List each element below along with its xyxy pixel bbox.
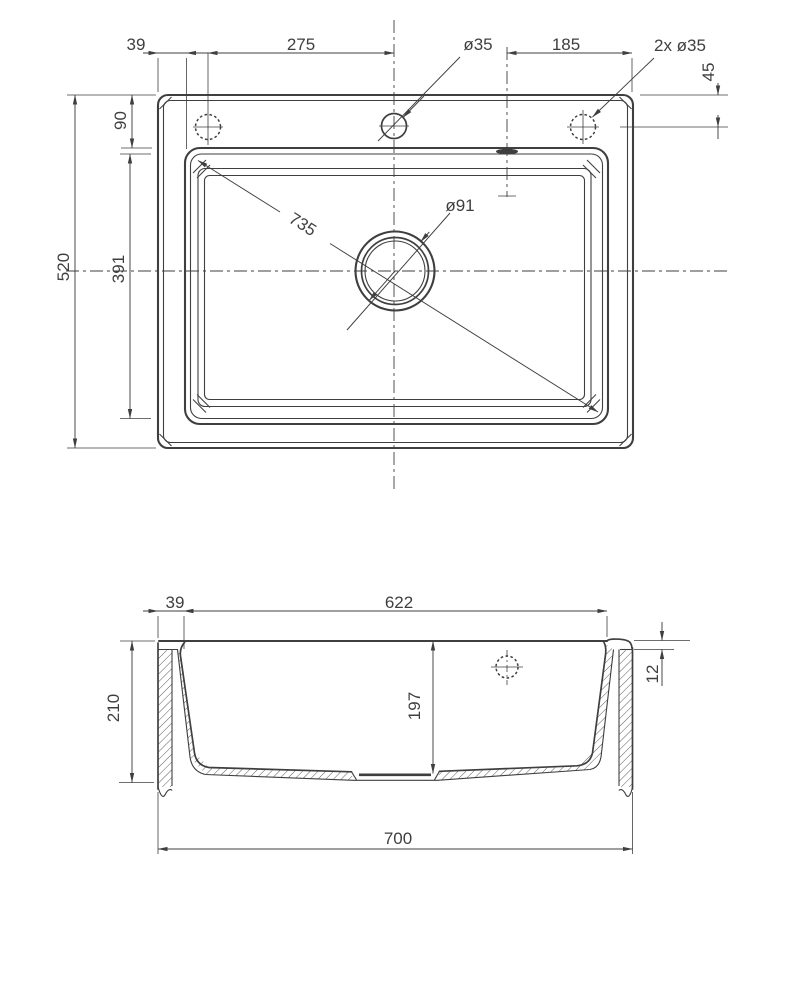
- centerlines: [66, 20, 731, 491]
- dim-45: 45: [620, 63, 728, 139]
- right-tap-hole-hidden: 2x ø35: [567, 36, 706, 144]
- top-view: 735 ø91 ø35: [54, 20, 731, 491]
- dim-bowl-diagonal: 735: [286, 209, 320, 240]
- hatch-right-skirt: [619, 650, 632, 787]
- bowl-top-edge: [185, 148, 608, 424]
- dim-overall-height: 210: [104, 694, 123, 722]
- dim-210: 210: [104, 641, 155, 783]
- drain: ø91: [347, 196, 475, 330]
- dim-top-chain: 39 275: [127, 35, 394, 149]
- sink-technical-drawing: 735 ø91 ø35: [0, 0, 794, 987]
- dim-overall-depth: 520: [54, 253, 73, 281]
- left-break-line: [158, 786, 172, 796]
- dim-bowl-width: 622: [385, 593, 413, 612]
- dim-overall-width: 700: [384, 829, 412, 848]
- dim-rim-height: 12: [643, 665, 662, 684]
- bowl-diagonal-dimension: 735: [198, 161, 598, 413]
- right-break-line: [619, 786, 633, 796]
- dim-bowl-depth: 391: [109, 255, 128, 283]
- dim-bowl-height: 197: [405, 692, 424, 720]
- dim-rim-offset-top: 39: [127, 35, 146, 54]
- bowl-outline: [185, 148, 608, 424]
- section-hatching: [158, 643, 632, 787]
- label-drain-diameter: ø91: [445, 196, 474, 215]
- dim-rim-offset-section: 39: [166, 593, 185, 612]
- bowl-outer-surface-left: [178, 650, 354, 781]
- dim-197: 197: [405, 641, 433, 774]
- bowl-rim-step: [191, 154, 603, 419]
- faucet-hole: ø35: [378, 35, 493, 141]
- dim-hole-spacing: 275: [287, 35, 315, 54]
- dim-overflow-to-edge: 185: [552, 35, 580, 54]
- dim-deck-depth: 90: [111, 111, 130, 130]
- hatch-right-wall-floor: [438, 643, 614, 780]
- section-view: 39 622 210 197 12 700: [104, 593, 690, 854]
- label-side-holes: 2x ø35: [654, 36, 706, 55]
- dim-391: 391: [109, 154, 151, 419]
- hatch-left-skirt: [158, 650, 171, 787]
- dim-12: 12: [634, 622, 690, 686]
- overflow-slot: [496, 149, 518, 155]
- bowl-floor-inner: [205, 176, 585, 400]
- drawing-sheet: 735 ø91 ø35: [0, 0, 794, 987]
- dim-700: 700: [158, 792, 633, 854]
- dim-hole-to-edge: 45: [699, 63, 718, 82]
- dim-185: 185: [507, 35, 632, 92]
- left-tap-hole-hidden: [193, 53, 223, 145]
- hatch-left-wall-floor: [178, 645, 353, 780]
- label-faucet-hole: ø35: [463, 35, 492, 54]
- bowl-inner-surface-right: [440, 643, 606, 772]
- right-rim-bead: [607, 639, 632, 648]
- dim-90: 90: [111, 95, 152, 148]
- sink-rim-edge: [164, 101, 628, 443]
- bowl-inner-surface-left: [180, 643, 351, 772]
